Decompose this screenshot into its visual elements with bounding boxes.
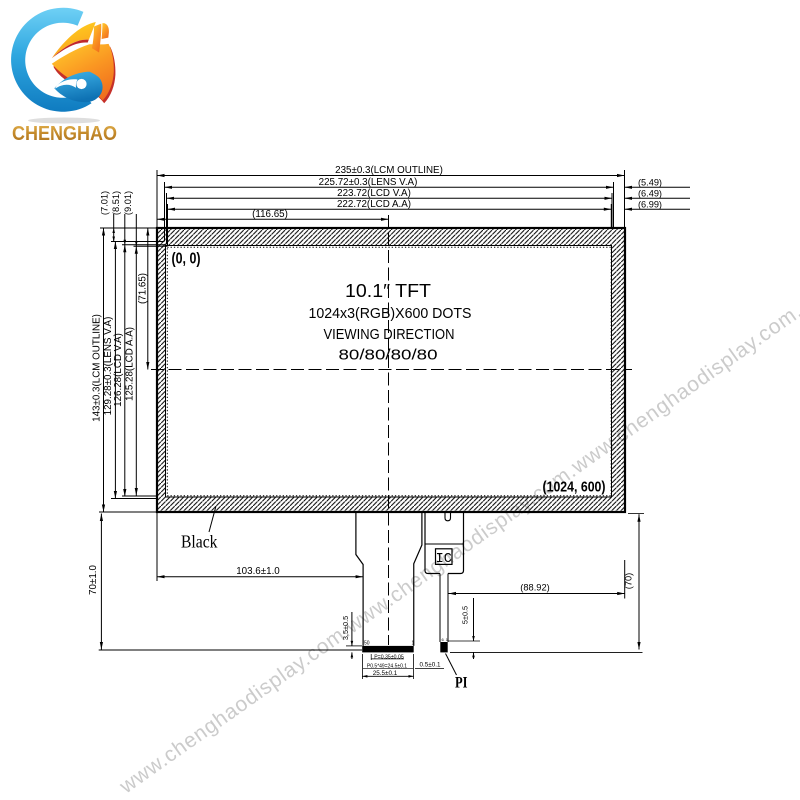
svg-text:(7.01): (7.01) [100,191,110,215]
svg-text:CHENGHAO: CHENGHAO [12,122,117,145]
svg-text:223.72(LCD V.A): 223.72(LCD V.A) [337,188,411,199]
svg-text:125.28(LCD A.A): 125.28(LCD A.A) [125,327,136,401]
svg-text:VIEWING DIRECTION: VIEWING DIRECTION [324,327,455,343]
svg-text:3.5±0.5: 3.5±0.5 [341,616,350,640]
svg-text:(88.92): (88.92) [520,583,549,593]
svg-text:143±0.3(LCM OUTLINE): 143±0.3(LCM OUTLINE) [92,314,103,422]
svg-text:PI: PI [455,675,468,692]
svg-text:(5.49): (5.49) [638,178,662,188]
svg-text:80/80/80/80: 80/80/80/80 [339,347,438,364]
svg-text:103.6±1.0: 103.6±1.0 [236,566,280,577]
svg-text:5±0.5: 5±0.5 [461,606,470,624]
svg-text:1: 1 [412,641,415,647]
svg-text:10.1″ TFT: 10.1″ TFT [345,281,431,301]
svg-text:(6.49): (6.49) [638,189,662,199]
svg-text:IC: IC [436,552,452,567]
svg-text:(1024, 600): (1024, 600) [543,480,606,496]
svg-text:(0, 0): (0, 0) [172,251,201,268]
svg-text:P=0.35±0.05: P=0.35±0.05 [374,654,404,660]
svg-text:70±1.0: 70±1.0 [88,565,99,595]
svg-text:0.5±0.1: 0.5±0.1 [420,662,441,669]
svg-text:50: 50 [364,641,370,647]
svg-text:1024x3(RGB)X600 DOTS: 1024x3(RGB)X600 DOTS [309,306,472,322]
svg-text:(9.01): (9.01) [123,191,133,215]
svg-text:222.72(LCD A.A): 222.72(LCD A.A) [337,199,411,210]
svg-text:(8.51): (8.51) [111,191,121,215]
svg-text:235±0.3(LCM OUTLINE): 235±0.3(LCM OUTLINE) [335,165,443,176]
svg-text:(70): (70) [624,573,634,590]
svg-text:(71.65): (71.65) [137,273,148,304]
svg-text:225.72±0.3(LENS V.A): 225.72±0.3(LENS V.A) [319,177,418,188]
svg-text:(6.99): (6.99) [638,200,662,210]
svg-text:Black: Black [181,532,218,552]
svg-text:(116.65): (116.65) [252,209,288,220]
svg-text:126.28(LCD V.A): 126.28(LCD V.A) [113,333,124,407]
svg-text:25.5±0.1: 25.5±0.1 [373,670,398,677]
